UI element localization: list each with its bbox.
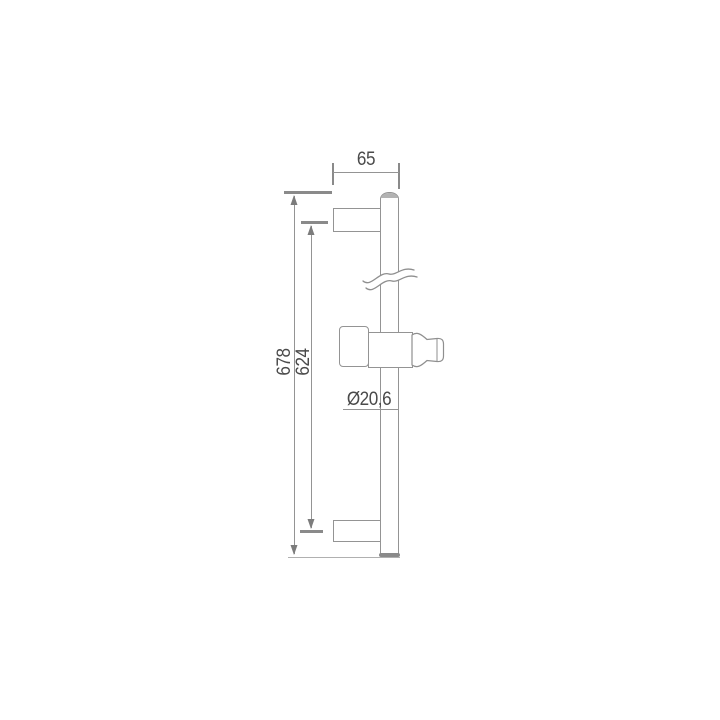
handset-holder-cone: [412, 333, 444, 366]
technical-drawing-canvas: 678 624 65 Ø20,6: [0, 0, 720, 720]
arrow-up-icon: [308, 225, 315, 235]
break-symbol-mask: [363, 269, 417, 290]
drawing-overlay: [0, 0, 720, 720]
arrow-down-icon: [308, 519, 315, 529]
arrow-up-icon: [291, 195, 298, 205]
arrow-down-icon: [291, 545, 298, 555]
